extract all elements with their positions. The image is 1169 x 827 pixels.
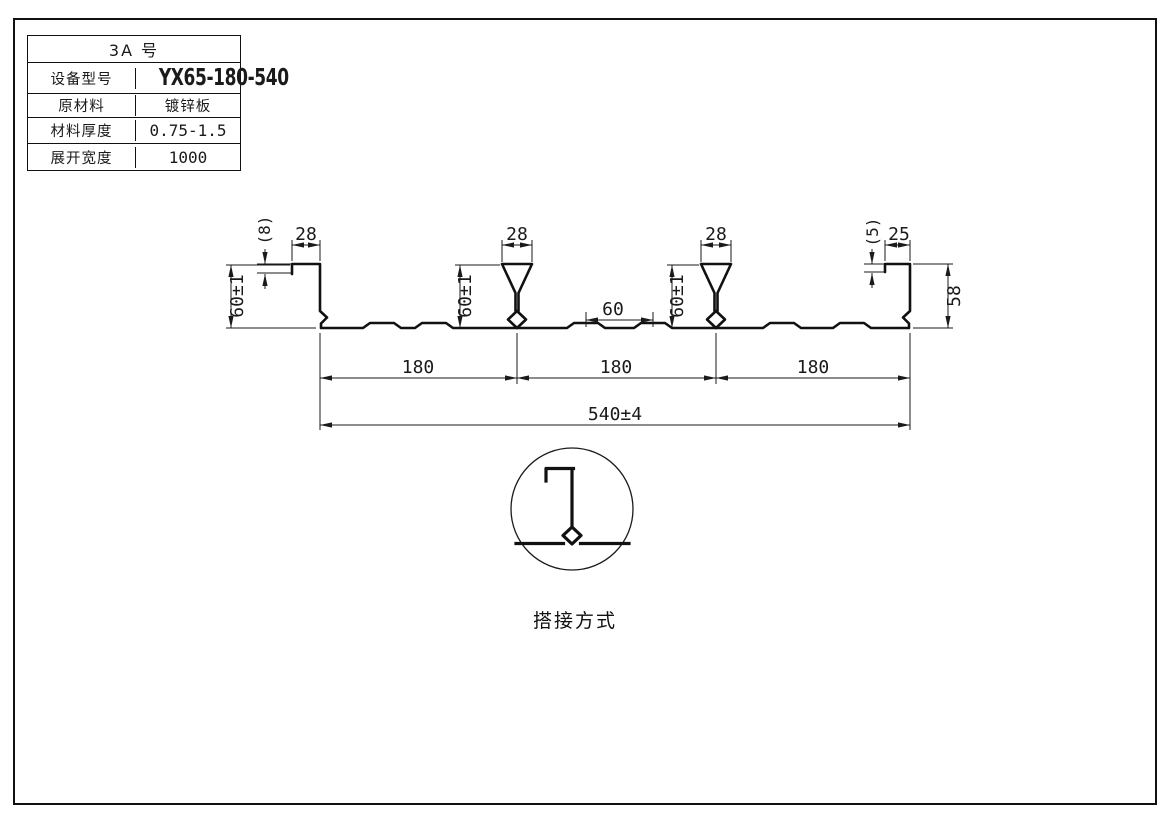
dim-label-left-lip: (8) [255, 216, 274, 245]
dim-label-stiffener: 60 [602, 299, 624, 320]
dim-label-overall: 540±4 [588, 404, 642, 425]
dim-label-rib1-height: 60±1 [455, 274, 476, 317]
lap-detail-diamond [563, 527, 581, 544]
profile-outline [292, 264, 910, 328]
lap-detail-hook [546, 469, 574, 528]
dim-label-pitch-1: 180 [402, 357, 435, 378]
dim-label-rib1-width: 28 [506, 224, 528, 245]
dim-label-left-hook: 28 [295, 224, 317, 245]
rib-1 [502, 264, 532, 328]
dim-label-pitch-2: 180 [600, 357, 633, 378]
rib-2 [701, 264, 731, 328]
dim-label-rib2-width: 28 [705, 224, 727, 245]
dim-label-right-height: 58 [944, 285, 965, 307]
dim-label-pitch-3: 180 [797, 357, 830, 378]
dim-label-rib2-height: 60±1 [667, 274, 688, 317]
dim-label-right-lip: (5) [863, 218, 882, 247]
profile-drawing: 180 180 180 540±4 60±1 (8) 28 28 60±1 60… [0, 0, 1169, 827]
dim-label-right-hook: 25 [888, 224, 910, 245]
drawing-page: { "spec_table": { "header": "3A 号", "row… [0, 0, 1169, 827]
dim-label-left-height: 60±1 [227, 274, 248, 317]
lap-detail-caption: 搭接方式 [533, 610, 617, 632]
